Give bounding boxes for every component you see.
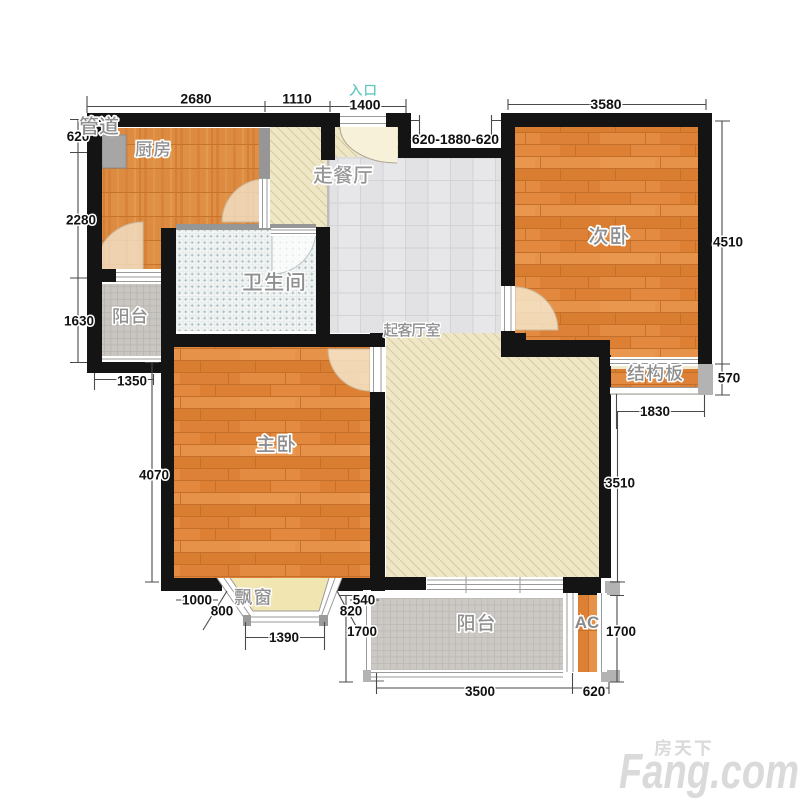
svg-text:570: 570 (718, 371, 741, 386)
svg-text:1350: 1350 (117, 374, 147, 389)
svg-text:2680: 2680 (180, 90, 211, 106)
svg-text:1700: 1700 (606, 624, 636, 639)
svg-text:1400: 1400 (349, 96, 380, 112)
svg-text:4070: 4070 (139, 468, 169, 483)
svg-text:1630: 1630 (64, 314, 94, 329)
svg-text:1110: 1110 (282, 90, 312, 106)
svg-text:1390: 1390 (269, 630, 299, 645)
svg-text:620-1880-620: 620-1880-620 (412, 131, 499, 147)
svg-text:1700: 1700 (347, 624, 377, 639)
svg-text:3510: 3510 (605, 476, 635, 491)
svg-text:3500: 3500 (465, 684, 495, 699)
svg-text:820: 820 (340, 604, 363, 619)
svg-text:AC: AC (575, 613, 600, 632)
svg-text:1000: 1000 (182, 593, 212, 608)
svg-text:4510: 4510 (713, 235, 743, 250)
svg-text:2280: 2280 (66, 213, 96, 228)
svg-text:620: 620 (583, 684, 606, 699)
svg-text:3580: 3580 (590, 96, 621, 112)
svg-text:Fang.com: Fang.com (619, 745, 799, 799)
svg-text:1830: 1830 (640, 404, 670, 419)
svg-text:800: 800 (211, 604, 234, 619)
